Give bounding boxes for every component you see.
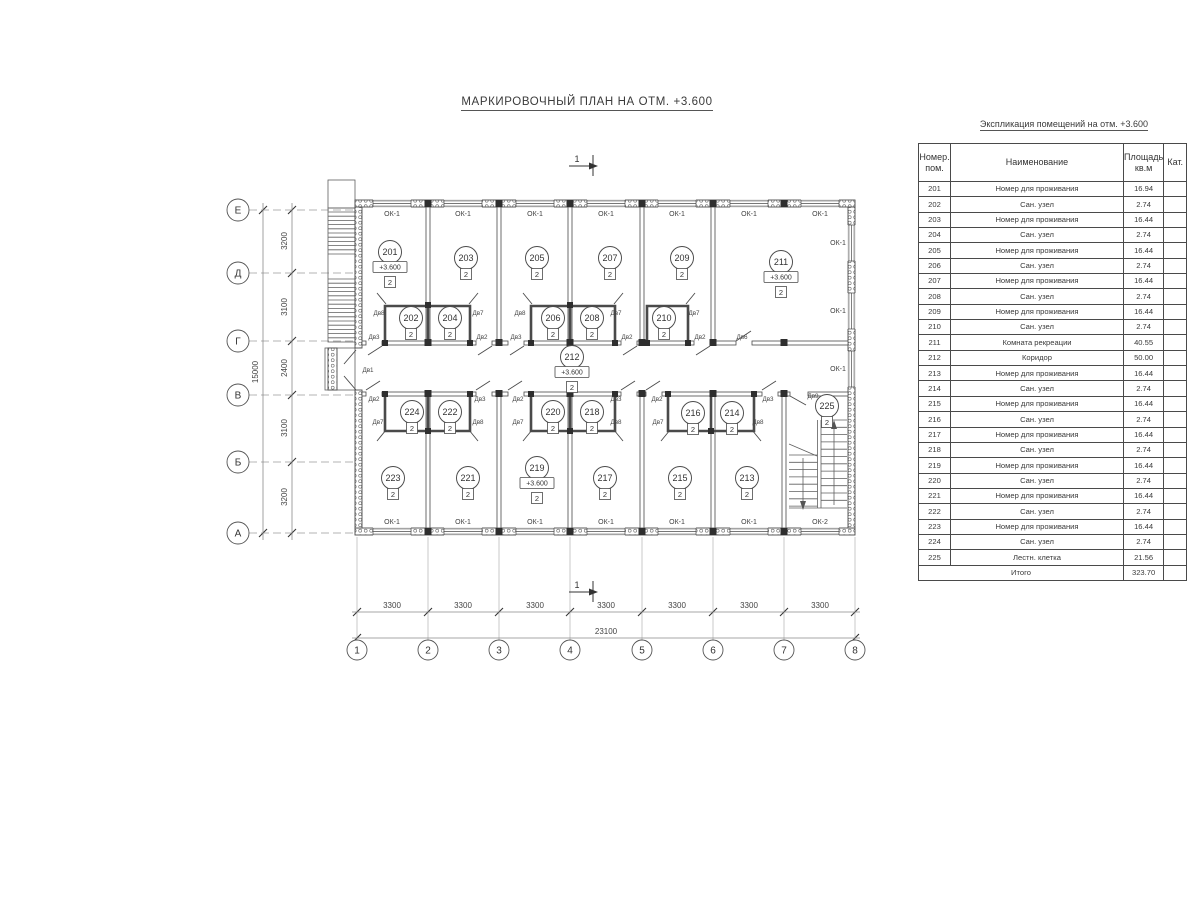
door-label: Дв3 — [610, 396, 622, 403]
dim-label: 3100 — [280, 419, 289, 437]
room-number: 218 — [584, 407, 599, 417]
room-number: 219 — [529, 463, 544, 473]
category-mark: 2 — [388, 278, 392, 287]
room-marker-207: 2072 — [599, 247, 622, 280]
room-markers: 201+3.6002202220322042205220622072208220… — [373, 241, 839, 504]
column-square — [425, 428, 431, 434]
door-label: Дв7 — [372, 419, 384, 426]
column-square — [567, 528, 574, 535]
table-row: 214Сан. узел2.74 — [919, 381, 1187, 396]
table-row: 224Сан. узел2.74 — [919, 534, 1187, 549]
table-cell: 16.44 — [1124, 519, 1164, 534]
table-cell: Сан. узел — [951, 289, 1124, 304]
table-row: 216Сан. узел2.74 — [919, 412, 1187, 427]
axis-col-label: 8 — [852, 646, 858, 657]
table-cell: 215 — [919, 396, 951, 411]
table-cell: 16.44 — [1124, 366, 1164, 381]
table-cell: 2.74 — [1124, 258, 1164, 273]
table-cell: 21.56 — [1124, 550, 1164, 565]
door-label: Дв8 — [610, 419, 622, 426]
grid-axes: ЕДГВБА12345678 — [227, 199, 865, 660]
table-row: 220Сан. узел2.74 — [919, 473, 1187, 488]
window-label: ОК-1 — [527, 211, 543, 218]
table-total-row: Итого323.70 — [919, 565, 1187, 580]
table-row: 223Номер для проживания16.44 — [919, 519, 1187, 534]
table-cell: 2.74 — [1124, 534, 1164, 549]
window-label: ОК-1 — [812, 211, 828, 218]
category-mark: 2 — [603, 490, 607, 499]
dim-total-label: 15000 — [251, 360, 260, 383]
table-cell: 2.74 — [1124, 442, 1164, 457]
room-marker-210: 2102 — [653, 307, 676, 340]
table-cell — [1164, 442, 1187, 457]
door-label: Дв2 — [476, 334, 488, 341]
table-cell: Номер для проживания — [951, 458, 1124, 473]
section-mark-top: 1 — [569, 154, 598, 176]
column-square — [781, 390, 788, 397]
door-label: Дв2 — [621, 334, 633, 341]
category-mark: 2 — [680, 270, 684, 279]
window-label: ОК-1 — [598, 211, 614, 218]
column-square — [639, 390, 646, 397]
total-area: 323.70 — [1124, 565, 1164, 580]
room-marker-214: 2142 — [721, 402, 744, 435]
category-mark: 2 — [590, 330, 594, 339]
door-label: Дв7 — [652, 419, 664, 426]
table-cell — [1164, 473, 1187, 488]
table-row: 213Номер для проживания16.44 — [919, 366, 1187, 381]
dim-label: 3100 — [280, 298, 289, 316]
table-cell: Лестн. клетка — [951, 550, 1124, 565]
dim-label: 3200 — [280, 488, 289, 506]
table-cell: Номер для проживания — [951, 182, 1124, 197]
table-cell: 2.74 — [1124, 504, 1164, 519]
table-cell: 209 — [919, 304, 951, 319]
category-mark: 2 — [570, 383, 574, 392]
room-number: 210 — [656, 313, 671, 323]
table-row: 222Сан. узел2.74 — [919, 504, 1187, 519]
table-cell — [1164, 182, 1187, 197]
table-cell: 201 — [919, 182, 951, 197]
room-marker-205: 2052 — [526, 247, 549, 280]
column-square — [567, 302, 573, 308]
table-row: 212Коридор50.00 — [919, 350, 1187, 365]
column-square — [612, 340, 618, 346]
dim-total-label: 23100 — [595, 627, 618, 636]
axis-col-label: 5 — [639, 646, 645, 657]
total-cat — [1164, 565, 1187, 580]
table-cell: 219 — [919, 458, 951, 473]
table-cell — [1164, 550, 1187, 565]
window-label: ОК-1 — [384, 519, 400, 526]
elevation-value: +3.600 — [379, 265, 401, 272]
table-cell: 202 — [919, 197, 951, 212]
window-label: ОК-2 — [812, 519, 828, 526]
room-number: 222 — [442, 407, 457, 417]
column-square — [496, 339, 503, 346]
table-cell: 2.74 — [1124, 320, 1164, 335]
window-label: ОК-1 — [669, 211, 685, 218]
window-label: ОК-1 — [598, 519, 614, 526]
table-cell: 218 — [919, 442, 951, 457]
table-cell — [1164, 289, 1187, 304]
door-label: Дв2 — [368, 396, 380, 403]
door-label: Дв7 — [472, 310, 484, 317]
axis-row-label: Д — [235, 269, 242, 280]
table-cell: 16.44 — [1124, 243, 1164, 258]
category-mark: 2 — [464, 270, 468, 279]
room-marker-220: 2202 — [542, 401, 565, 434]
table-cell: Сан. узел — [951, 473, 1124, 488]
table-row: 205Номер для проживания16.44 — [919, 243, 1187, 258]
column-square — [567, 200, 574, 207]
table-cell: Номер для проживания — [951, 488, 1124, 503]
dim-label: 3300 — [526, 601, 544, 610]
dimension-lines — [263, 203, 860, 638]
table-cell — [1164, 488, 1187, 503]
table-cell: 222 — [919, 504, 951, 519]
window-label: ОК-1 — [669, 519, 685, 526]
dim-label: 3200 — [280, 232, 289, 250]
table-cell: 16.44 — [1124, 458, 1164, 473]
col-header-num: Номер.пом. — [919, 144, 951, 182]
room-marker-206: 2062 — [542, 307, 565, 340]
door-label: Дв7 — [688, 310, 700, 317]
door-label: Дв3 — [762, 396, 774, 403]
table-cell: 2.74 — [1124, 473, 1164, 488]
room-number: 209 — [674, 253, 689, 263]
column-square — [567, 428, 573, 434]
table-cell: 214 — [919, 381, 951, 396]
table-cell: 220 — [919, 473, 951, 488]
room-number: 212 — [564, 352, 579, 362]
table-cell: 208 — [919, 289, 951, 304]
column-square — [781, 339, 788, 346]
table-cell — [1164, 212, 1187, 227]
table-cell: Номер для проживания — [951, 519, 1124, 534]
door-label: Дв7 — [512, 419, 524, 426]
table-cell: 211 — [919, 335, 951, 350]
window-label: ОК-1 — [830, 308, 846, 315]
table-cell: Номер для проживания — [951, 274, 1124, 289]
table-row: 201Номер для проживания16.94 — [919, 182, 1187, 197]
window-label: ОК-1 — [741, 211, 757, 218]
category-mark: 2 — [608, 270, 612, 279]
table-cell: Коридор — [951, 350, 1124, 365]
column-square — [639, 528, 646, 535]
column-square — [710, 339, 717, 346]
table-cell: Номер для проживания — [951, 212, 1124, 227]
door-label: Дв3 — [368, 334, 380, 341]
table-cell: Сан. узел — [951, 320, 1124, 335]
category-mark: 2 — [535, 270, 539, 279]
table-cell: Сан. узел — [951, 228, 1124, 243]
table-cell — [1164, 243, 1187, 258]
table-cell — [1164, 320, 1187, 335]
room-marker-225: 2252 — [816, 395, 839, 428]
table-row: 210Сан. узел2.74 — [919, 320, 1187, 335]
column-square — [781, 200, 788, 207]
category-mark: 2 — [409, 330, 413, 339]
category-mark: 2 — [410, 424, 414, 433]
column-square — [496, 200, 503, 207]
table-cell: 40.55 — [1124, 335, 1164, 350]
table-row: 217Номер для проживания16.44 — [919, 427, 1187, 442]
room-marker-224: 2242 — [401, 401, 424, 434]
column-square — [644, 340, 650, 346]
room-number: 213 — [739, 473, 754, 483]
table-cell — [1164, 458, 1187, 473]
table-cell: Сан. узел — [951, 504, 1124, 519]
table-row: 202Сан. узел2.74 — [919, 197, 1187, 212]
table-row: 218Сан. узел2.74 — [919, 442, 1187, 457]
window-label: ОК-1 — [830, 366, 846, 373]
category-mark: 2 — [448, 424, 452, 433]
table-cell: 221 — [919, 488, 951, 503]
room-number: 224 — [404, 407, 419, 417]
axis-col-label: 3 — [496, 646, 502, 657]
room-marker-217: 2172 — [594, 467, 617, 500]
room-marker-203: 2032 — [455, 247, 478, 280]
table-cell — [1164, 366, 1187, 381]
column-square — [751, 391, 757, 397]
column-square — [528, 340, 534, 346]
room-number: 202 — [403, 313, 418, 323]
table-cell: 224 — [919, 534, 951, 549]
door-label: Дв9 — [807, 393, 819, 400]
table-cell — [1164, 258, 1187, 273]
column-square — [425, 302, 431, 308]
table-row: 206Сан. узел2.74 — [919, 258, 1187, 273]
table-cell: Сан. узел — [951, 534, 1124, 549]
category-mark: 2 — [730, 425, 734, 434]
room-marker-212: 212+3.6002 — [555, 346, 589, 393]
door-label: Дв1 — [362, 367, 374, 374]
table-cell: 2.74 — [1124, 197, 1164, 212]
room-number: 215 — [672, 473, 687, 483]
room-number: 221 — [460, 473, 475, 483]
room-number: 216 — [685, 408, 700, 418]
column-square — [425, 339, 432, 346]
table-row: 207Номер для проживания16.44 — [919, 274, 1187, 289]
room-number: 203 — [458, 253, 473, 263]
table-cell: Номер для проживания — [951, 243, 1124, 258]
table-row: 221Номер для проживания16.44 — [919, 488, 1187, 503]
table-cell: 50.00 — [1124, 350, 1164, 365]
door-label: Дв7 — [610, 310, 622, 317]
table-cell — [1164, 274, 1187, 289]
table-cell: 16.44 — [1124, 396, 1164, 411]
column-square — [425, 200, 432, 207]
column-square — [528, 391, 534, 397]
room-number: 211 — [774, 257, 788, 267]
elevation-value: +3.600 — [561, 370, 583, 377]
room-number: 223 — [385, 473, 400, 483]
room-number: 201 — [382, 247, 397, 257]
window-label: ОК-1 — [384, 211, 400, 218]
room-number: 225 — [819, 401, 834, 411]
door-label: Дв8 — [514, 310, 526, 317]
category-mark: 2 — [448, 330, 452, 339]
table-cell: 2.74 — [1124, 289, 1164, 304]
window-label: ОК-1 — [455, 211, 471, 218]
room-marker-219: 219+3.6002 — [520, 457, 554, 504]
axis-row-label: Е — [235, 206, 242, 217]
table-cell: Сан. узел — [951, 412, 1124, 427]
total-label: Итого — [919, 565, 1124, 580]
table-cell: 212 — [919, 350, 951, 365]
axis-row-label: А — [235, 529, 242, 540]
explication-table: Номер.пом. Наименование Площадькв.м Кат.… — [918, 143, 1187, 581]
table-cell — [1164, 412, 1187, 427]
table-cell: Номер для проживания — [951, 304, 1124, 319]
door-label: Дв2 — [651, 396, 663, 403]
table-cell: 2.74 — [1124, 228, 1164, 243]
table-cell — [1164, 350, 1187, 365]
room-marker-204: 2042 — [439, 307, 462, 340]
dim-label: 3300 — [668, 601, 686, 610]
column-square — [467, 391, 473, 397]
door-label: Дв3 — [510, 334, 522, 341]
door-label: Дв2 — [694, 334, 706, 341]
column-square — [708, 428, 714, 434]
table-cell — [1164, 304, 1187, 319]
exterior-stair — [325, 180, 355, 390]
table-cell — [1164, 335, 1187, 350]
door-label: Дв2 — [512, 396, 524, 403]
table-cell: 16.94 — [1124, 182, 1164, 197]
axis-col-label: 2 — [425, 646, 431, 657]
table-cell: 205 — [919, 243, 951, 258]
table-row: 204Сан. узел2.74 — [919, 228, 1187, 243]
door-label: Дв6 — [736, 334, 748, 341]
column-square — [639, 200, 646, 207]
room-marker-209: 2092 — [671, 247, 694, 280]
column-square — [665, 391, 671, 397]
interior-stair — [789, 420, 847, 510]
svg-text:1: 1 — [574, 580, 579, 590]
table-cell: 210 — [919, 320, 951, 335]
drawing-sheet: МАРКИРОВОЧНЫЙ ПЛАН НА ОТМ. +3.600 Экспли… — [0, 0, 1200, 900]
table-cell: Номер для проживания — [951, 396, 1124, 411]
room-number: 220 — [545, 407, 560, 417]
column-square — [567, 339, 574, 346]
column-square — [496, 528, 503, 535]
section-mark-bottom: 1 — [569, 580, 598, 602]
table-cell — [1164, 519, 1187, 534]
room-marker-201: 201+3.6002 — [373, 241, 407, 288]
table-cell — [1164, 504, 1187, 519]
room-number: 205 — [529, 253, 544, 263]
category-mark: 2 — [678, 490, 682, 499]
table-cell — [1164, 396, 1187, 411]
room-marker-202: 2022 — [400, 307, 423, 340]
axis-col-label: 4 — [567, 646, 573, 657]
table-row: 211Комната рекреации40.55 — [919, 335, 1187, 350]
dim-label: 3300 — [597, 601, 615, 610]
axis-row-label: Б — [235, 458, 242, 469]
table-header-row: Номер.пом. Наименование Площадькв.м Кат. — [919, 144, 1187, 182]
column-square — [425, 390, 432, 397]
dim-label: 3300 — [454, 601, 472, 610]
dimension-labels: 3200310024003100320015000330033003300330… — [251, 232, 829, 636]
col-header-area: Площадькв.м — [1124, 144, 1164, 182]
table-cell — [1164, 427, 1187, 442]
table-cell — [1164, 534, 1187, 549]
column-square — [781, 528, 788, 535]
category-mark: 2 — [779, 288, 783, 297]
column-square — [496, 390, 503, 397]
table-cell — [1164, 197, 1187, 212]
room-number: 214 — [724, 408, 739, 418]
table-row: 209Номер для проживания16.44 — [919, 304, 1187, 319]
category-mark: 2 — [825, 418, 829, 427]
window-label: ОК-1 — [830, 240, 846, 247]
table-cell: 225 — [919, 550, 951, 565]
room-marker-222: 2222 — [439, 401, 462, 434]
table-cell: 2.74 — [1124, 412, 1164, 427]
table-cell: Номер для проживания — [951, 427, 1124, 442]
column-square — [425, 528, 432, 535]
table-cell: 16.44 — [1124, 274, 1164, 289]
dim-label: 2400 — [280, 359, 289, 377]
table-row: 219Номер для проживания16.44 — [919, 458, 1187, 473]
room-marker-223: 2232 — [382, 467, 405, 500]
room-marker-208: 2082 — [581, 307, 604, 340]
category-mark: 2 — [590, 424, 594, 433]
column-square — [710, 390, 717, 397]
dim-label: 3300 — [383, 601, 401, 610]
table-row: 203Номер для проживания16.44 — [919, 212, 1187, 227]
room-marker-218: 2182 — [581, 401, 604, 434]
table-cell: 223 — [919, 519, 951, 534]
door-label: Дв8 — [373, 310, 385, 317]
room-number: 207 — [602, 253, 617, 263]
category-mark: 2 — [551, 424, 555, 433]
room-marker-216: 2162 — [682, 402, 705, 435]
table-cell: 213 — [919, 366, 951, 381]
category-mark: 2 — [466, 490, 470, 499]
door-label: Дв8 — [472, 419, 484, 426]
column-square — [710, 200, 717, 207]
table-cell: Номер для проживания — [951, 366, 1124, 381]
window-label: ОК-1 — [741, 519, 757, 526]
window-label: ОК-1 — [527, 519, 543, 526]
table-cell: 203 — [919, 212, 951, 227]
table-cell: 216 — [919, 412, 951, 427]
elevation-value: +3.600 — [770, 275, 792, 282]
col-header-name: Наименование — [951, 144, 1124, 182]
door-label: Дв3 — [474, 396, 486, 403]
table-cell: Сан. узел — [951, 442, 1124, 457]
axis-row-label: Г — [235, 337, 241, 348]
column-square — [467, 340, 473, 346]
table-cell: 2.74 — [1124, 381, 1164, 396]
axis-col-label: 7 — [781, 646, 787, 657]
room-marker-211: 211+3.6002 — [764, 251, 798, 298]
table-cell — [1164, 228, 1187, 243]
table-row: 215Номер для проживания16.44 — [919, 396, 1187, 411]
room-number: 206 — [545, 313, 560, 323]
category-mark: 2 — [391, 490, 395, 499]
table-cell: Сан. узел — [951, 197, 1124, 212]
table-cell: 206 — [919, 258, 951, 273]
room-number: 217 — [597, 473, 612, 483]
table-cell: Сан. узел — [951, 381, 1124, 396]
room-marker-215: 2152 — [669, 467, 692, 500]
table-cell: Сан. узел — [951, 258, 1124, 273]
corridor-walls — [362, 341, 848, 396]
